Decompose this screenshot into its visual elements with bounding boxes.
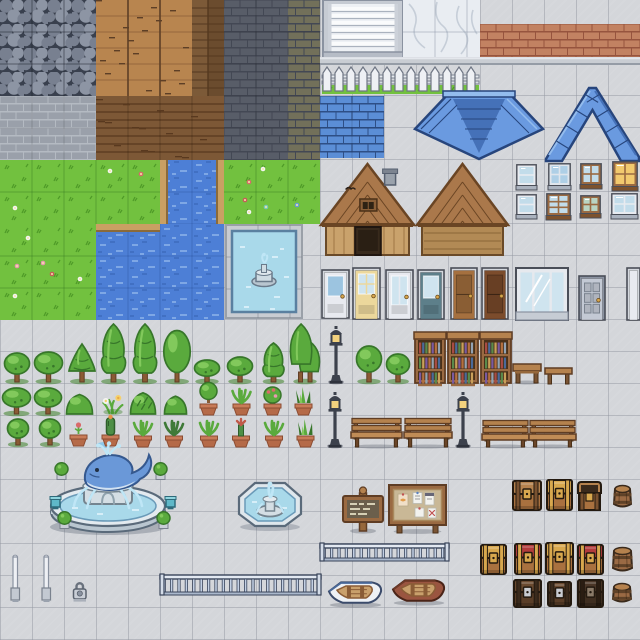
olive-brick-column[interactable] [288, 0, 320, 160]
wooden-cabin-with-doorway[interactable] [320, 163, 415, 256]
bush-round-small[interactable] [3, 351, 31, 384]
tree-double-pine[interactable] [291, 323, 319, 384]
potted-snake-plant[interactable] [292, 387, 315, 416]
chest-gold-row-2[interactable] [545, 542, 574, 575]
bush-tree-round-1[interactable] [1, 386, 32, 416]
street-lamp-mid-2[interactable] [452, 392, 474, 448]
tree-pine-layered[interactable] [260, 342, 287, 384]
window-brown-4pane[interactable] [580, 163, 602, 189]
shuttered-window-large[interactable] [323, 0, 403, 61]
park-bench-3[interactable] [482, 419, 529, 448]
bookshelf-3[interactable] [480, 332, 512, 384]
street-lamp-tall[interactable] [326, 326, 346, 384]
barrel-medium-2[interactable] [611, 581, 633, 605]
fountain-plant-1[interactable] [53, 461, 70, 480]
chest-gold-row-1[interactable] [480, 544, 507, 575]
tiled-pool-with-fountain[interactable] [226, 225, 302, 318]
chest-wood-banded[interactable] [512, 480, 542, 511]
window-blue-small[interactable] [548, 163, 571, 190]
wooden-cabin-gable[interactable] [416, 163, 509, 256]
potted-topiary-ball[interactable] [197, 385, 220, 416]
bookshelf-2[interactable] [447, 332, 479, 384]
octagonal-fountain[interactable] [236, 478, 304, 530]
park-bench-2[interactable] [404, 417, 452, 448]
padlock-meter[interactable] [71, 579, 88, 602]
park-tree-round-2[interactable] [385, 352, 411, 384]
notice-board[interactable] [389, 483, 446, 533]
terracotta-pot-plant-6[interactable] [293, 419, 318, 448]
blue-planter-left[interactable] [48, 492, 62, 509]
potted-plant-leafy[interactable] [229, 385, 254, 416]
door-wood-dark[interactable] [482, 268, 508, 319]
dark-plank-floor[interactable] [96, 96, 224, 160]
door-teal[interactable] [418, 270, 444, 319]
grass-meadow-lower[interactable] [0, 224, 96, 320]
marble-tile-block[interactable] [403, 0, 480, 61]
terracotta-pot-plant-5[interactable] [261, 419, 287, 448]
wooden-signpost[interactable] [342, 485, 384, 533]
bush-round-medium[interactable] [193, 358, 221, 384]
flower-clump[interactable] [101, 391, 125, 416]
blue-peak-roof[interactable] [545, 83, 640, 161]
tree-conical[interactable] [67, 342, 97, 384]
door-white-edge[interactable] [627, 268, 640, 320]
fountain-plant-4[interactable] [155, 510, 172, 529]
barrel-small[interactable] [612, 483, 633, 510]
tree-round-medium[interactable] [33, 350, 64, 384]
park-tree-round-1[interactable] [355, 344, 383, 384]
fountain-plant-2[interactable] [152, 461, 169, 480]
window-white-wide[interactable] [611, 193, 638, 219]
window-brown-6pane[interactable] [546, 193, 571, 220]
marker-pole-2[interactable] [40, 555, 53, 603]
potted-flower-bush[interactable] [260, 385, 285, 416]
blue-hip-roof[interactable] [413, 83, 545, 161]
street-lamp-mid-1[interactable] [324, 392, 346, 448]
cobblestone-wall-block[interactable] [0, 0, 96, 96]
topiary-mini-2[interactable] [38, 417, 62, 447]
wood-wall-edge[interactable] [192, 0, 224, 96]
park-bench-1[interactable] [351, 417, 402, 448]
chest-red-lid-1[interactable] [514, 543, 542, 575]
rowboat-white[interactable] [327, 577, 384, 607]
rowboat-brown[interactable] [391, 575, 447, 605]
terracotta-pot-plant-4[interactable] [228, 419, 254, 448]
blue-planter-right[interactable] [163, 492, 177, 509]
grass-meadow-right[interactable] [224, 160, 320, 224]
grass-meadow-top[interactable] [0, 160, 160, 224]
topiary-mini-1[interactable] [6, 417, 30, 447]
window-white-narrow-1[interactable] [516, 164, 537, 190]
door-white-glass[interactable] [386, 270, 413, 319]
red-brick-strip[interactable] [480, 24, 640, 57]
stone-ledge-strip[interactable] [320, 57, 640, 65]
bush-mound-small[interactable] [163, 393, 188, 416]
wood-plank-floor[interactable] [96, 0, 192, 96]
river-vertical[interactable] [160, 160, 224, 225]
bush-tree-round-2[interactable] [33, 386, 63, 416]
door-gray-panel[interactable] [579, 276, 605, 320]
tree-bushy-round[interactable] [226, 355, 254, 384]
chest-dark-1[interactable] [513, 579, 542, 608]
marker-pole-1[interactable] [9, 555, 22, 603]
chest-dark-2[interactable] [547, 581, 572, 607]
chest-gold-trim[interactable] [546, 479, 573, 511]
wooden-side-table[interactable] [513, 364, 541, 384]
chest-open[interactable] [577, 480, 602, 511]
fountain-plant-3[interactable] [56, 510, 73, 529]
park-bench-4[interactable] [529, 419, 576, 448]
tree-cypress[interactable] [162, 327, 192, 384]
lake-water[interactable] [96, 224, 224, 320]
chest-dark-3[interactable] [577, 579, 604, 608]
dark-brick-wall[interactable] [224, 0, 288, 160]
tree-pine-tall-1[interactable] [98, 323, 129, 384]
terracotta-pot-plant-3[interactable] [196, 419, 222, 448]
shrub-leafy[interactable] [129, 389, 157, 416]
tree-pine-tall-2[interactable] [130, 323, 160, 384]
tileset-canvas [0, 0, 640, 640]
window-green-4pane[interactable] [580, 195, 601, 218]
bookshelf-1[interactable] [414, 332, 446, 384]
window-white-narrow-2[interactable] [516, 194, 537, 219]
chest-red-lid-2[interactable] [577, 544, 604, 575]
window-lit-warm[interactable] [612, 161, 638, 191]
door-cream-glazed[interactable] [353, 268, 380, 319]
wooden-bench-small[interactable] [545, 368, 572, 384]
blue-shingle-block[interactable] [320, 96, 384, 158]
bush-mound-large[interactable] [65, 391, 94, 416]
metal-railing-upper[interactable] [320, 543, 449, 563]
storefront-window[interactable] [516, 268, 568, 320]
barrel-medium-1[interactable] [611, 545, 634, 574]
door-wood-light[interactable] [451, 268, 477, 319]
metal-railing-lower[interactable] [160, 574, 321, 597]
gray-brick-wall[interactable] [0, 96, 96, 160]
door-white-blue-glass[interactable] [322, 270, 349, 318]
